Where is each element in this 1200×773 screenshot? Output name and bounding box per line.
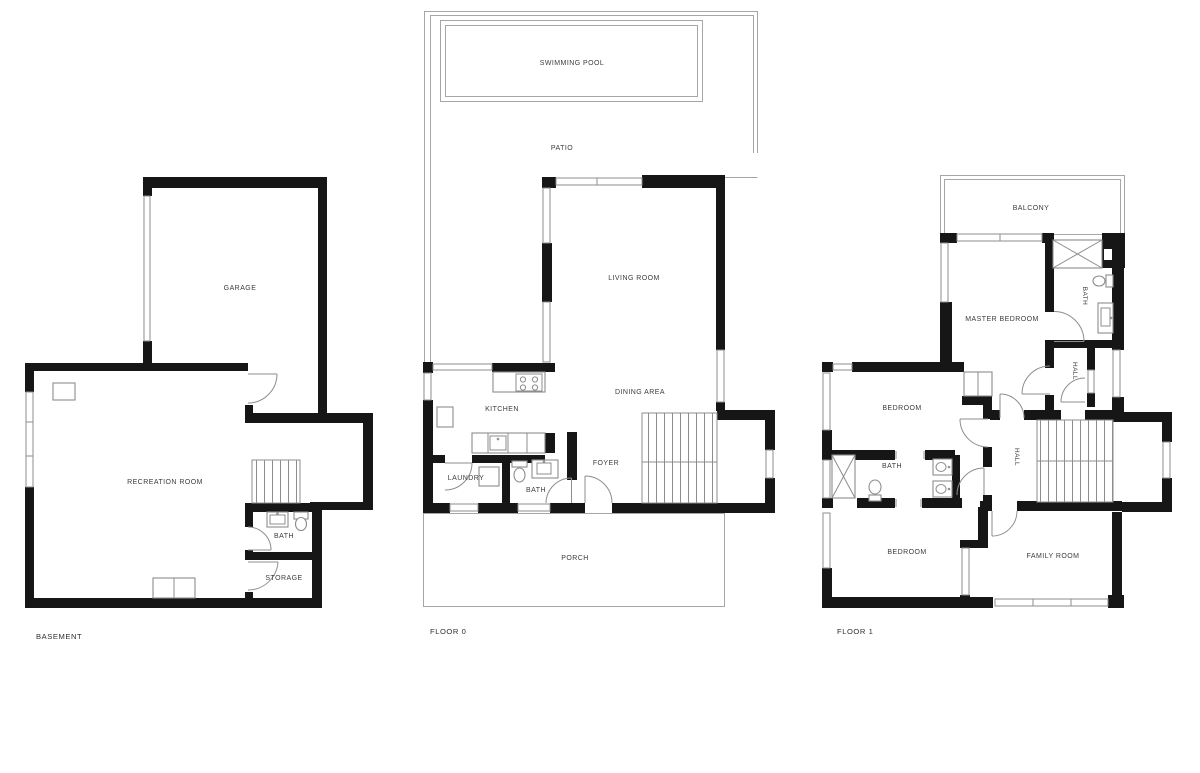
basement-stairs <box>252 460 300 503</box>
room-label-garage: GARAGE <box>224 285 257 292</box>
plan-title-floor1: FLOOR 1 <box>837 627 873 636</box>
plan-title-floor0: FLOOR 0 <box>430 627 466 636</box>
room-label-laundry: LAUNDRY <box>448 475 484 482</box>
family-room-door <box>992 511 1017 536</box>
master-closet <box>1053 240 1102 268</box>
room-label-family: FAMILY ROOM <box>1027 553 1080 560</box>
basement-walls <box>25 177 373 608</box>
room-label-foyer: FOYER <box>593 460 619 467</box>
kitchen-counter <box>493 372 545 392</box>
column-icon <box>53 383 75 400</box>
room-label-balcony: BALCONY <box>1013 205 1050 212</box>
bath-openings <box>896 451 924 507</box>
toilet-icon <box>1093 275 1113 287</box>
floorplan-page: GARAGE RECREATION ROOM BATH STORAGE BASE… <box>0 0 1200 773</box>
master-hall-door <box>1022 366 1050 394</box>
room-label-bath-top: BATH <box>1081 287 1088 306</box>
garage-window <box>144 196 150 341</box>
entry-door <box>585 476 612 503</box>
floor1-plan: BALCONY MASTER BEDROOM BATH HALL BEDROOM… <box>822 176 1172 637</box>
room-label-pool: SWIMMING POOL <box>540 60 605 67</box>
sink-icon <box>267 512 288 527</box>
basement-plan: GARAGE RECREATION ROOM BATH STORAGE BASE… <box>25 177 373 641</box>
room-label-hall-main: HALL <box>1013 448 1020 466</box>
toilet-icon <box>869 480 881 501</box>
room-label-kitchen: KITCHEN <box>485 406 519 413</box>
floor0-bath-door <box>546 478 572 503</box>
sink-icon <box>532 460 558 478</box>
room-label-floor0-bath: BATH <box>526 487 546 494</box>
room-label-dining: DINING AREA <box>615 389 665 396</box>
hall-stairs-door <box>1061 378 1085 402</box>
room-label-bedroom-bottom: BEDROOM <box>887 549 926 556</box>
fridge-icon <box>437 407 453 427</box>
sink-icon <box>1098 303 1113 333</box>
room-label-basement-bath: BATH <box>274 533 294 540</box>
toilet-icon <box>294 512 308 531</box>
master-bath-door <box>1054 312 1084 342</box>
floor1-stairs <box>1037 420 1113 502</box>
recreation-window <box>26 392 33 487</box>
floor0-stairs <box>642 413 717 503</box>
room-label-living: LIVING ROOM <box>608 275 660 282</box>
floor0-plan: SWIMMING POOL PATIO LIVING ROOM DINING A… <box>423 11 775 636</box>
master-door <box>1000 394 1024 418</box>
kitchen-island <box>472 433 545 453</box>
basement-bath-door <box>248 527 271 550</box>
bath-mid-door <box>957 468 984 495</box>
bedroom-closet <box>964 372 992 396</box>
room-label-recreation: RECREATION ROOM <box>127 479 203 486</box>
toilet-icon <box>512 461 527 482</box>
floor1-walls <box>822 233 1172 608</box>
room-label-hall-top: HALL <box>1071 362 1078 380</box>
bath-closet <box>832 455 855 498</box>
garage-door <box>248 374 277 403</box>
sofa-icon <box>153 578 195 598</box>
room-label-master: MASTER BEDROOM <box>965 316 1039 323</box>
heater-icon <box>1104 249 1112 260</box>
plan-title-basement: BASEMENT <box>36 632 82 641</box>
room-label-bath-mid: BATH <box>882 463 902 470</box>
room-label-bedroom-top: BEDROOM <box>882 405 921 412</box>
bedroom-top-door <box>960 419 988 447</box>
floorplan-canvas: GARAGE RECREATION ROOM BATH STORAGE BASE… <box>0 0 1200 773</box>
room-label-porch: PORCH <box>561 555 589 562</box>
double-sink-icon <box>933 459 952 497</box>
room-label-patio: PATIO <box>551 145 573 152</box>
room-label-storage: STORAGE <box>265 575 302 582</box>
